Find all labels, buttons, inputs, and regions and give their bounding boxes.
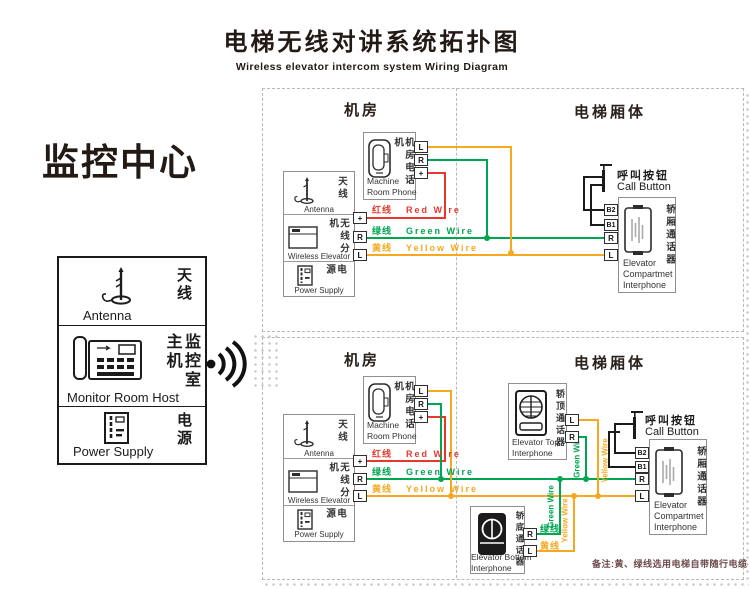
antenna-small-icon	[292, 418, 320, 448]
compartment-interphone-box-bottom: 轿厢通话器 Elevator Compartmet Interphone	[649, 439, 707, 535]
red-wire-label-en: Red Wire	[406, 449, 461, 459]
monitor-row-antenna: 天线 Antenna	[59, 258, 205, 325]
compartment-interphone-en: Elevator Compartmet Interphone	[623, 258, 673, 291]
yellow-wire	[597, 419, 599, 497]
yellow-wire-vertical-label: Yellow Wire	[601, 431, 610, 491]
dot-texture-bottom	[263, 581, 749, 589]
yellow-wire-label: 黄线Yellow Wire	[372, 482, 478, 495]
call-button-lead	[608, 466, 635, 468]
wire-junction	[595, 493, 601, 499]
terminal-L: L	[353, 249, 367, 261]
terminal-R: R	[353, 473, 367, 485]
red-wire-label-en: Red Wire	[406, 205, 461, 215]
section-machine-room-top: 机房	[344, 99, 380, 120]
terminal-L: L	[604, 249, 618, 261]
section-elevator-car-bottom: 电梯厢体	[574, 352, 646, 373]
machine-room-phone-en2: Room Phone	[367, 431, 417, 442]
terminal-L: L	[414, 385, 428, 397]
interphone-icon	[655, 447, 683, 497]
green-wire-short-label: 绿线	[540, 522, 560, 535]
yellow-wire-vertical-label: Yellow Wire	[561, 491, 570, 551]
compartment-interphone-en3: Interphone	[654, 522, 704, 533]
top-interphone-icon	[515, 390, 547, 436]
yellow-wire-label-zh: 黄线	[372, 243, 392, 253]
terminal-plus: +	[414, 167, 428, 179]
red-wire-label: 红线Red Wire	[372, 203, 461, 216]
power-supply-small-icon	[297, 509, 313, 530]
yellow-wire	[366, 254, 604, 256]
terminal-plus: +	[353, 455, 367, 467]
wall-phone-icon	[368, 139, 392, 179]
antenna-small-icon	[292, 175, 320, 205]
call-button-lead	[614, 452, 635, 454]
terminal-R: R	[604, 232, 618, 244]
wireless-extension-icon	[288, 226, 318, 249]
call-button-en: Call Button	[617, 181, 671, 193]
call-button-lead	[590, 184, 592, 225]
terminal-R: R	[414, 398, 428, 410]
compartment-interphone-en3: Interphone	[623, 280, 673, 291]
terminal-R: R	[635, 473, 649, 485]
red-wire-label-zh: 红线	[372, 449, 392, 459]
machine-room-phone-en2: Room Phone	[367, 187, 417, 198]
call-button-icon	[600, 164, 618, 194]
top-interphone-en2: Interphone	[512, 448, 559, 459]
call-button-lead	[608, 431, 620, 433]
monitor-host-zh: 监控室主机	[162, 333, 199, 393]
green-wire	[427, 159, 488, 161]
terminal-B2: B2	[635, 447, 649, 459]
power-supply-small-icon	[297, 265, 313, 286]
yellow-wire-label-en: Yellow Wire	[406, 484, 478, 494]
monitor-power-en: Power Supply	[73, 444, 153, 459]
compartment-interphone-en2: Compartmet	[654, 511, 704, 522]
yellow-wire-label-zh: 黄线	[372, 484, 392, 494]
green-wire-label: 绿线Green Wire	[372, 465, 474, 478]
compartment-interphone-en2: Compartmet	[623, 269, 673, 280]
yellow-wire	[573, 495, 575, 552]
wireless-stack-box-bottom: 天线 Antenna 无线分机 Wireless Elevator 电源 Pow…	[283, 414, 355, 542]
compartment-interphone-en1: Elevator	[654, 500, 704, 511]
terminal-L: L	[523, 545, 537, 557]
page-title: 电梯无线对讲系统拓扑图 Wireless elevator intercom s…	[0, 22, 744, 73]
green-wire-label-zh: 绿线	[372, 467, 392, 477]
terminal-plus: +	[353, 212, 367, 224]
red-wire-label-zh: 红线	[372, 205, 392, 215]
terminal-L: L	[414, 141, 428, 153]
yellow-wire-label-en: Yellow Wire	[406, 243, 478, 253]
stack-separator	[284, 458, 354, 459]
terminal-plus: +	[414, 411, 428, 423]
machine-room-phone-en: Machine Room Phone	[367, 176, 417, 198]
wireless-signal-icon	[204, 338, 252, 390]
wireless-stack-box-top: 天线 Antenna 无线分机 Wireless Elevator 电源 Pow…	[283, 171, 355, 297]
green-wire	[585, 436, 587, 480]
red-wire-label: 红线Red Wire	[372, 447, 461, 460]
wire-junction	[583, 476, 589, 482]
page-title-en: Wireless elevator intercom system Wiring…	[0, 61, 744, 73]
interphone-icon	[624, 205, 652, 255]
monitor-center-box: 天线 Antenna 监控室主机 Monitor Room	[57, 256, 207, 465]
monitor-row-power: 电源 Power Supply	[59, 406, 205, 461]
dot-texture-gap	[252, 333, 279, 389]
green-wire-label-en: Green Wire	[406, 467, 474, 477]
top-interphone-en1: Elevator Top	[512, 437, 559, 448]
terminal-L: L	[635, 490, 649, 502]
yellow-wire-short-label: 黄线	[540, 539, 560, 552]
monitor-antenna-en: Antenna	[83, 308, 131, 323]
section-machine-room-bottom: 机房	[344, 349, 380, 370]
terminal-L: L	[353, 490, 367, 502]
red-wire	[366, 460, 446, 462]
dot-texture-right	[744, 92, 750, 584]
terminal-R: R	[565, 431, 579, 443]
footer-note: 备注:黄、绿线选用电梯自带随行电缆	[592, 557, 748, 570]
yellow-wire	[450, 390, 452, 497]
monitor-antenna-zh: 天线	[175, 267, 192, 313]
bottom-interphone-en2: Interphone	[471, 563, 531, 574]
monitor-host-en: Monitor Room Host	[67, 390, 179, 405]
antenna-zh: 天线	[335, 419, 346, 445]
stack-separator	[284, 214, 354, 215]
terminal-B2: B2	[604, 204, 618, 216]
yellow-wire	[427, 146, 512, 148]
terminal-R: R	[353, 231, 367, 243]
terminal-L: L	[565, 414, 579, 426]
section-elevator-car-top: 电梯厢体	[574, 101, 646, 122]
compartment-interphone-en: Elevator Compartmet Interphone	[654, 500, 704, 533]
wire-junction	[484, 235, 490, 241]
call-button-lead	[614, 423, 616, 454]
wiring-diagram-page: 电梯无线对讲系统拓扑图 Wireless elevator intercom s…	[0, 0, 750, 589]
power-supply-icon	[102, 411, 132, 445]
stack-separator	[284, 261, 354, 262]
green-wire	[486, 159, 488, 239]
terminal-R: R	[414, 154, 428, 166]
desk-phone-icon	[71, 332, 147, 386]
monitor-center-heading: 监控中心	[42, 132, 198, 186]
machine-room-phone-en1: Machine	[367, 176, 417, 187]
terminal-B1: B1	[604, 219, 618, 231]
wireless-extension-icon	[288, 470, 318, 493]
yellow-wire-label: 黄线Yellow Wire	[372, 241, 478, 254]
wire-junction	[557, 476, 563, 482]
bottom-interphone-icon	[477, 512, 507, 556]
machine-room-phone-en: Machine Room Phone	[367, 420, 417, 442]
green-wire-label-zh: 绿线	[372, 226, 392, 236]
yellow-wire	[579, 419, 599, 421]
wire-junction	[508, 250, 514, 256]
yellow-wire	[427, 390, 452, 392]
yellow-wire	[510, 146, 512, 256]
wire-junction	[571, 493, 577, 499]
call-button-lead	[590, 224, 604, 226]
power-supply-en: Power Supply	[284, 285, 354, 296]
call-button-icon	[627, 411, 645, 441]
compartment-interphone-en1: Elevator	[623, 258, 673, 269]
stack-separator	[284, 505, 354, 506]
call-button-lead	[583, 176, 585, 211]
antenna-icon	[93, 264, 139, 306]
call-button-en: Call Button	[645, 426, 699, 438]
monitor-row-host: 监控室主机 Monitor Room Host	[59, 325, 205, 406]
top-interphone-en: Elevator Top Interphone	[512, 437, 559, 459]
machine-room-phone-en1: Machine	[367, 420, 417, 431]
antenna-zh: 天线	[335, 176, 346, 202]
compartment-interphone-box-top: 轿厢通话器 Elevator Compartmet Interphone	[618, 197, 676, 293]
power-supply-en: Power Supply	[284, 529, 354, 540]
page-title-zh: 电梯无线对讲系统拓扑图	[0, 22, 744, 57]
green-wire-label: 绿线Green Wire	[372, 224, 474, 237]
terminal-B1: B1	[635, 461, 649, 473]
green-wire-label-en: Green Wire	[406, 226, 474, 236]
green-wire	[366, 478, 635, 480]
wall-phone-icon	[368, 383, 392, 423]
monitor-power-zh: 电源	[175, 412, 192, 452]
call-button-lead	[583, 209, 604, 211]
terminal-R: R	[523, 528, 537, 540]
red-wire	[366, 217, 446, 219]
